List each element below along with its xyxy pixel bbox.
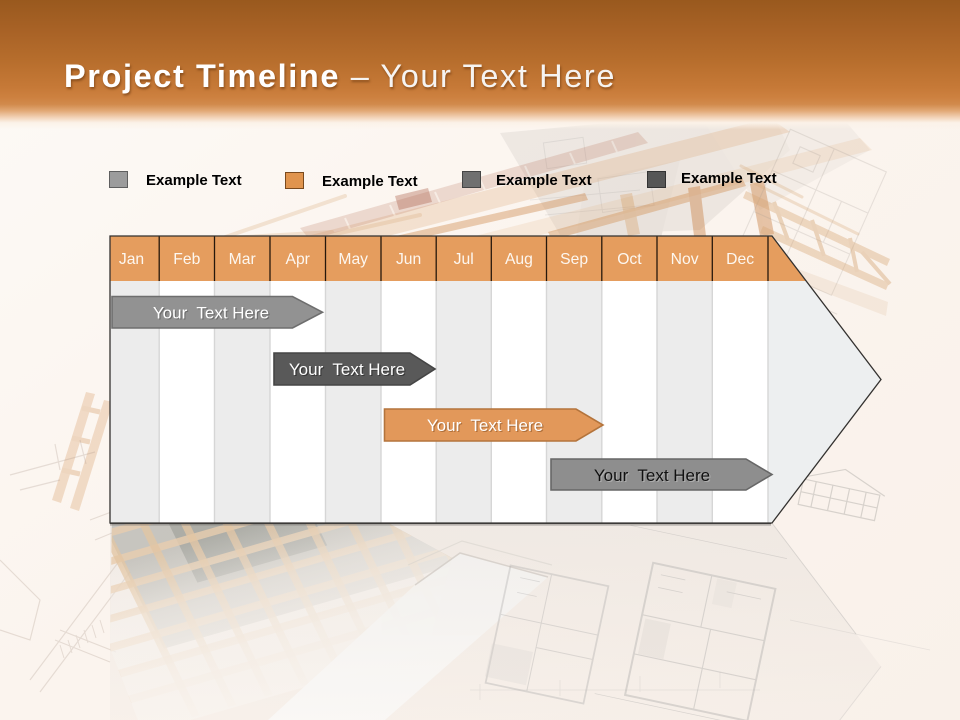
- svg-text:Oct: Oct: [617, 251, 642, 268]
- svg-text:Jun: Jun: [396, 251, 421, 268]
- svg-text:Nov: Nov: [671, 251, 699, 268]
- svg-text:Sep: Sep: [560, 251, 588, 268]
- svg-text:Jul: Jul: [454, 251, 474, 268]
- svg-text:Your Text Here: Your Text Here: [289, 360, 405, 379]
- svg-text:Jan: Jan: [119, 251, 144, 268]
- svg-text:Your Text Here: Your Text Here: [594, 466, 710, 485]
- svg-text:Feb: Feb: [173, 251, 200, 268]
- svg-text:Dec: Dec: [726, 251, 754, 268]
- svg-text:May: May: [338, 251, 368, 268]
- svg-text:Apr: Apr: [285, 251, 309, 268]
- svg-text:Your Text Here: Your Text Here: [153, 304, 269, 323]
- svg-text:Mar: Mar: [229, 251, 256, 268]
- svg-text:Aug: Aug: [505, 251, 533, 268]
- svg-text:Your Text Here: Your Text Here: [427, 416, 543, 435]
